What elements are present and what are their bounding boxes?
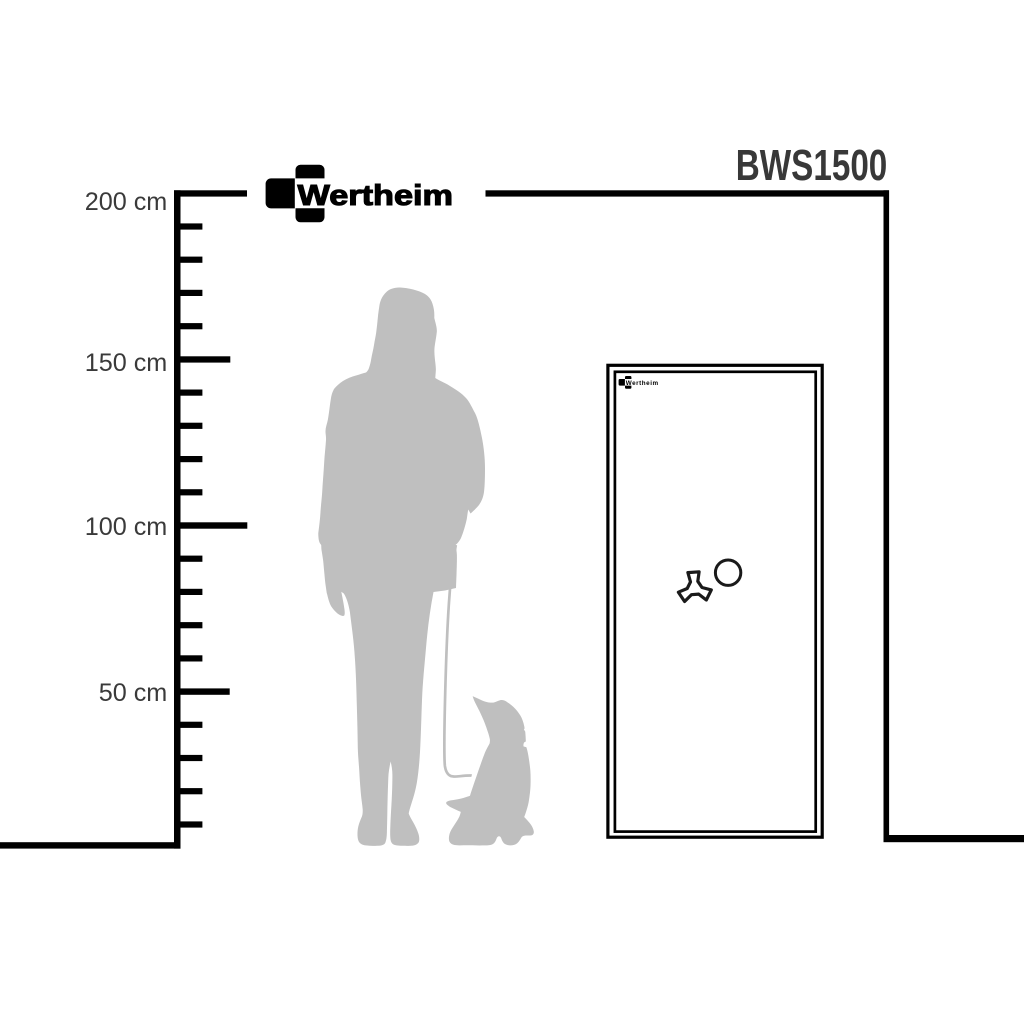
- svg-text:200 cm: 200 cm: [85, 188, 168, 216]
- svg-text:Wertheim: Wertheim: [298, 180, 454, 212]
- svg-text:Wertheim: Wertheim: [626, 380, 659, 387]
- svg-text:150 cm: 150 cm: [85, 349, 168, 377]
- svg-text:BWS1500: BWS1500: [736, 141, 888, 190]
- svg-text:100 cm: 100 cm: [85, 513, 168, 541]
- svg-text:50 cm: 50 cm: [99, 679, 168, 707]
